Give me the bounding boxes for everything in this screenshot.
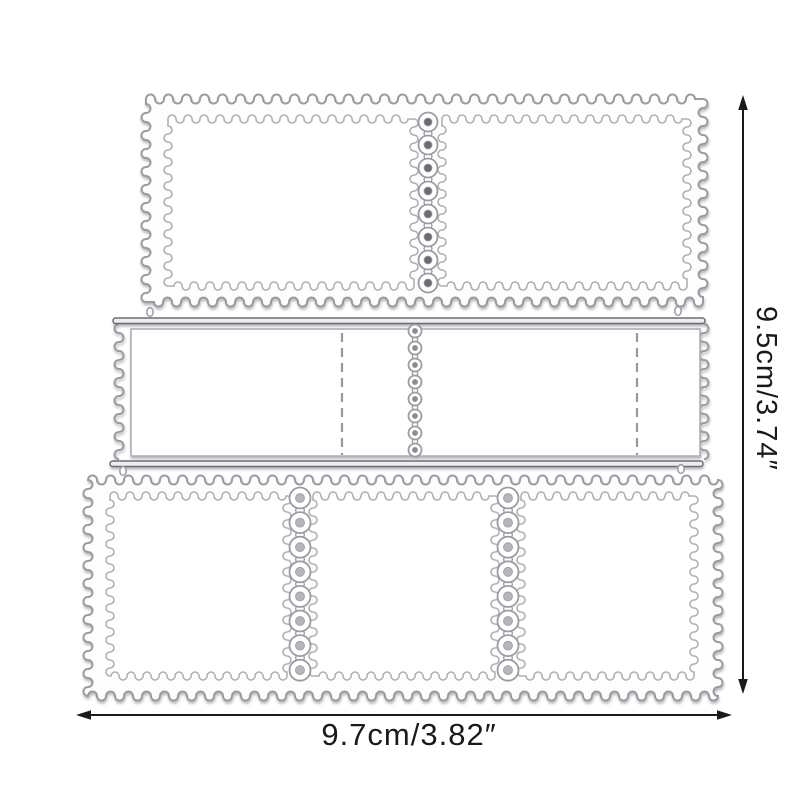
perforation-hole bbox=[504, 641, 513, 650]
perforation-hole bbox=[296, 543, 305, 552]
stamp-opening bbox=[106, 492, 291, 680]
die-straight-bar bbox=[110, 461, 703, 467]
perforation-hole bbox=[504, 666, 513, 675]
width-dimension-label: 9.7cm/3.82″ bbox=[104, 717, 714, 753]
stamp-cutting-dies-illustration bbox=[0, 0, 800, 800]
perforation-hole bbox=[296, 494, 305, 503]
die-piece-bottom bbox=[84, 476, 723, 701]
perforation-hole bbox=[412, 396, 417, 401]
height-dimension-label: 9.5cm/3.74″ bbox=[749, 306, 782, 471]
perforation-hole bbox=[504, 567, 513, 576]
perforation-hole bbox=[412, 328, 417, 333]
perforation-hole bbox=[412, 345, 417, 350]
perforation-hole bbox=[424, 233, 432, 241]
perforation-hole bbox=[504, 518, 513, 527]
perforation-hole bbox=[424, 118, 432, 126]
vertical-dimension-arrow bbox=[738, 95, 748, 694]
scalloped-edge-left bbox=[115, 324, 124, 459]
perforation-hole bbox=[412, 379, 417, 384]
perforation-hole bbox=[412, 430, 417, 435]
perforation-hole bbox=[296, 641, 305, 650]
stamp-opening bbox=[517, 492, 698, 680]
perforation-hole bbox=[504, 543, 513, 552]
perforation-hole bbox=[412, 362, 417, 367]
die-piece-middle bbox=[110, 318, 709, 467]
perforation-hole bbox=[424, 141, 432, 149]
perforation-hole bbox=[412, 413, 417, 418]
perforation-hole bbox=[296, 666, 305, 675]
perforation-hole bbox=[504, 592, 513, 601]
die-straight-bar bbox=[113, 318, 705, 324]
perforation-hole bbox=[504, 494, 513, 503]
perforation-hole bbox=[424, 187, 432, 195]
perforation-hole bbox=[504, 617, 513, 626]
perforation-hole bbox=[424, 256, 432, 264]
perforation-hole bbox=[296, 617, 305, 626]
arrow-head-left-icon bbox=[76, 710, 91, 720]
arrow-head-right-icon bbox=[717, 710, 732, 720]
die-piece-top bbox=[142, 95, 708, 307]
die-connector-nub bbox=[120, 467, 126, 476]
scalloped-edge-right bbox=[700, 324, 709, 459]
die-connector-nub bbox=[678, 465, 684, 474]
die-connector-nub bbox=[147, 308, 153, 317]
stamp-opening bbox=[438, 115, 691, 290]
perforation-hole bbox=[296, 592, 305, 601]
perforation-hole bbox=[424, 279, 432, 287]
perforation-hole bbox=[412, 447, 417, 452]
arrow-head-up-icon bbox=[738, 95, 748, 110]
perforation-hole bbox=[424, 210, 432, 218]
perforation-hole bbox=[296, 567, 305, 576]
arrow-head-down-icon bbox=[738, 679, 748, 694]
perforation-hole bbox=[296, 518, 305, 527]
die-connector-nub bbox=[675, 307, 681, 316]
product-photo: 9.5cm/3.74″ 9.7cm/3.82″ bbox=[0, 0, 800, 800]
stamp-opening bbox=[309, 492, 499, 680]
perforation-hole bbox=[424, 164, 432, 172]
stamp-opening bbox=[164, 115, 418, 290]
